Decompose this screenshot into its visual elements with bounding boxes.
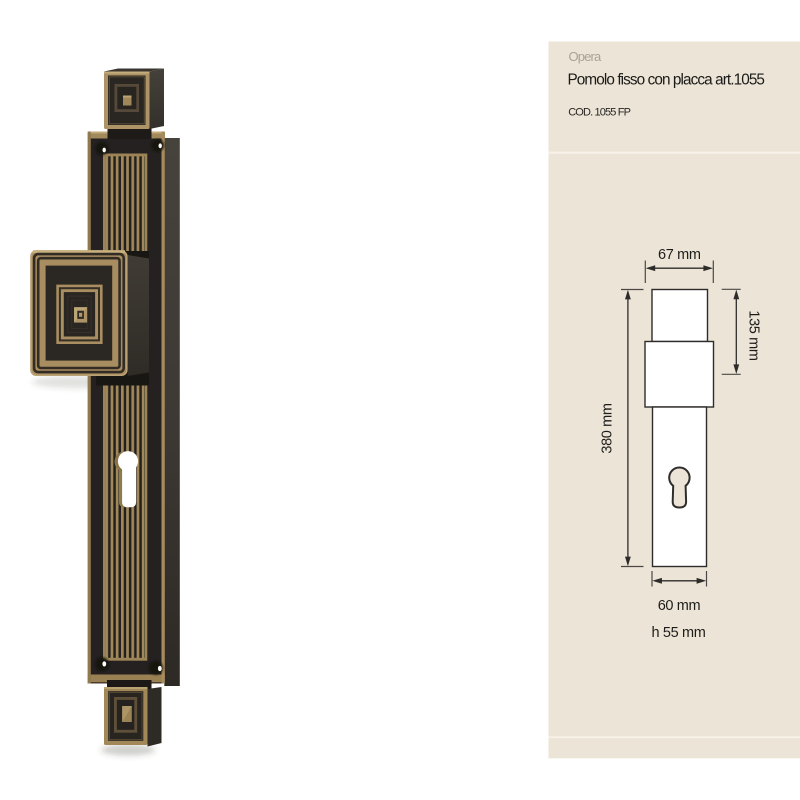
svg-text:COD. 1055 FP: COD. 1055 FP [568, 107, 630, 119]
svg-text:135 mm: 135 mm [746, 310, 762, 361]
svg-text:380 mm: 380 mm [600, 403, 616, 454]
svg-text:Pomolo fisso con placca art.10: Pomolo fisso con placca art.1055 [568, 72, 765, 89]
svg-text:Opera: Opera [569, 49, 603, 64]
svg-text:h 55 mm: h 55 mm [652, 625, 706, 641]
svg-text:60 mm: 60 mm [658, 598, 701, 614]
svg-text:67 mm: 67 mm [658, 247, 701, 263]
